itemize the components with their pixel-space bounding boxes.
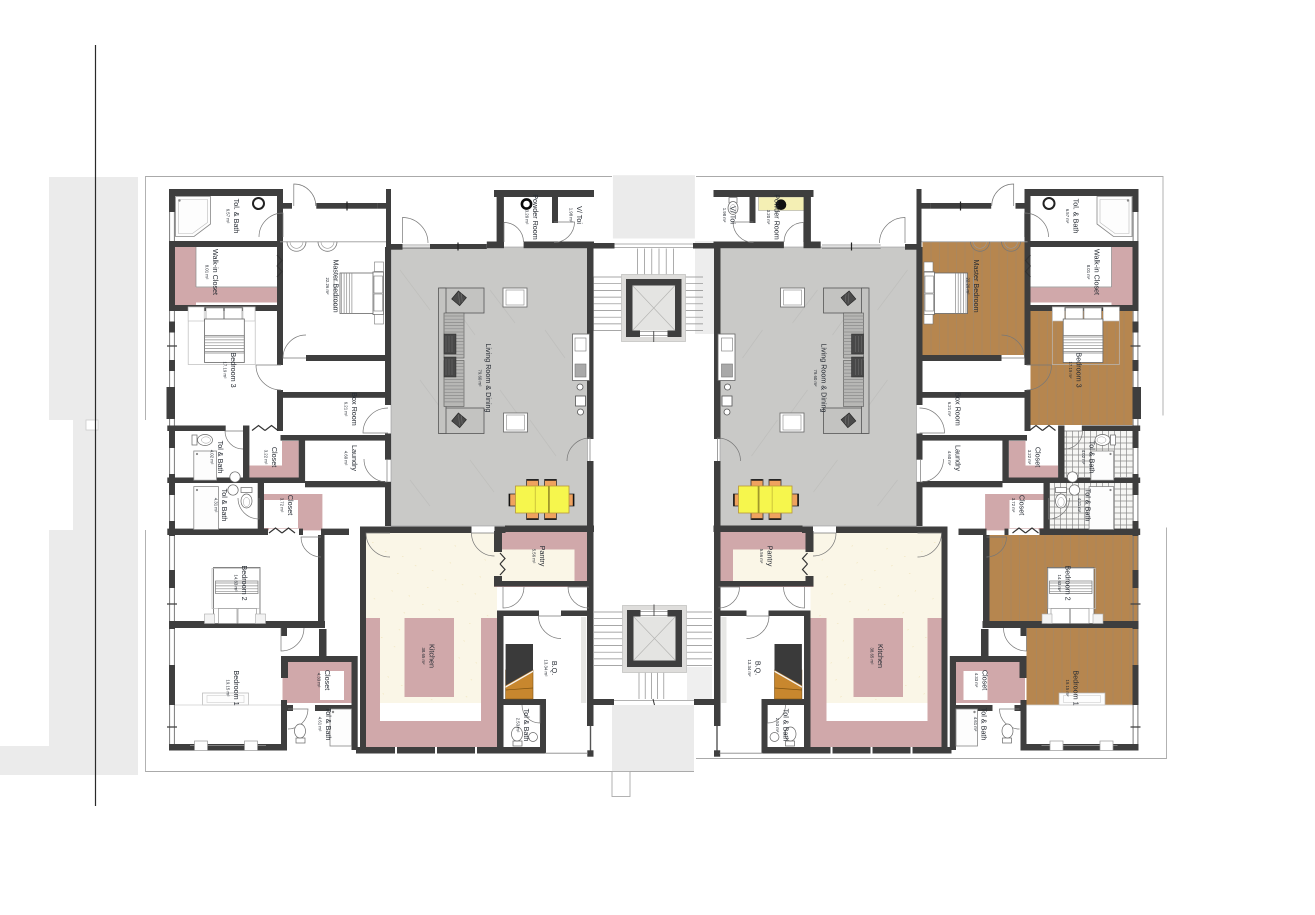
svg-text:V/ Toi: V/ Toi — [575, 206, 584, 224]
svg-text:Closet: Closet — [981, 670, 990, 690]
svg-text:4.33 m²: 4.33 m² — [974, 673, 979, 688]
svg-text:14.63 m²: 14.63 m² — [1057, 575, 1062, 593]
svg-text:1.98 m²: 1.98 m² — [722, 208, 727, 223]
svg-text:Closet: Closet — [1018, 495, 1027, 515]
svg-text:14.63 m²: 14.63 m² — [233, 575, 238, 593]
svg-text:Tol & Bath: Tol & Bath — [1084, 489, 1093, 522]
svg-text:3.22 m²: 3.22 m² — [1027, 450, 1032, 465]
svg-text:Walk-in Closet: Walk-in Closet — [211, 249, 220, 295]
svg-text:2.53 m²: 2.53 m² — [515, 718, 520, 733]
svg-text:Tol & Bath: Tol & Bath — [522, 709, 531, 742]
svg-text:3.22 m²: 3.22 m² — [263, 450, 268, 465]
svg-text:Box Room: Box Room — [350, 392, 359, 426]
svg-text:5.56 m²: 5.56 m² — [531, 549, 536, 564]
svg-text:Powder Room: Powder Room — [531, 194, 540, 240]
svg-text:B.Q.: B.Q. — [754, 661, 763, 675]
svg-text:Tol & Bath: Tol & Bath — [324, 708, 333, 741]
svg-text:Bedroom 3: Bedroom 3 — [229, 352, 238, 387]
svg-text:Bedroom 1: Bedroom 1 — [232, 670, 241, 705]
svg-text:4.31 m²: 4.31 m² — [213, 498, 218, 513]
svg-text:Laundry: Laundry — [954, 445, 963, 471]
svg-text:4.60 m²: 4.60 m² — [947, 451, 952, 466]
svg-text:3.20 m²: 3.20 m² — [766, 210, 771, 225]
svg-text:Bedroom 2: Bedroom 2 — [240, 565, 249, 600]
svg-text:Bedroom 3: Bedroom 3 — [1075, 352, 1084, 387]
svg-text:22.26 m²: 22.26 m² — [965, 278, 970, 296]
svg-text:Bedroom 1: Bedroom 1 — [1072, 670, 1081, 705]
svg-text:4.61 m²: 4.61 m² — [973, 717, 978, 732]
svg-text:Pantry: Pantry — [766, 546, 775, 567]
svg-text:Pantry: Pantry — [538, 546, 547, 567]
svg-text:8.01 m²: 8.01 m² — [204, 265, 209, 280]
svg-text:Tol. & Bath: Tol. & Bath — [1072, 199, 1081, 234]
svg-text:Living Room & Dining: Living Room & Dining — [820, 343, 829, 412]
svg-text:17.19 m²: 17.19 m² — [222, 362, 227, 380]
svg-text:38.65 m²: 38.65 m² — [869, 648, 874, 666]
svg-text:22.26 m²: 22.26 m² — [325, 278, 330, 296]
svg-text:Closet: Closet — [323, 670, 332, 690]
svg-text:19.15 m²: 19.15 m² — [225, 680, 230, 698]
svg-text:3.72 m²: 3.72 m² — [279, 498, 284, 513]
svg-text:79.60 m²: 79.60 m² — [477, 370, 482, 388]
svg-text:Closet: Closet — [286, 495, 295, 515]
svg-text:6.21 m²: 6.21 m² — [947, 402, 952, 417]
svg-text:4.02 m²: 4.02 m² — [1081, 450, 1086, 465]
svg-text:B.Q.: B.Q. — [550, 661, 559, 675]
svg-text:1.98 m²: 1.98 m² — [568, 208, 573, 223]
svg-text:Box Room: Box Room — [954, 392, 963, 426]
svg-text:Closet: Closet — [270, 447, 279, 467]
svg-text:19.15 m²: 19.15 m² — [1065, 680, 1070, 698]
svg-text:Tol & Bath: Tol & Bath — [980, 708, 989, 741]
svg-text:4.33 m²: 4.33 m² — [316, 673, 321, 688]
svg-text:79.60 m²: 79.60 m² — [813, 370, 818, 388]
svg-text:6.57 m²: 6.57 m² — [1065, 209, 1070, 224]
svg-text:13.34 m²: 13.34 m² — [543, 660, 548, 678]
svg-text:6.57 m²: 6.57 m² — [225, 209, 230, 224]
svg-text:6.21 m²: 6.21 m² — [343, 402, 348, 417]
svg-text:3.72 m²: 3.72 m² — [1011, 498, 1016, 513]
svg-text:Tol & Bath: Tol & Bath — [216, 441, 225, 474]
svg-text:4.60 m²: 4.60 m² — [343, 451, 348, 466]
svg-text:Tol & Bath: Tol & Bath — [782, 709, 791, 742]
svg-text:Powder Room: Powder Room — [773, 194, 782, 240]
svg-text:3.20 m²: 3.20 m² — [524, 210, 529, 225]
svg-text:Tol. & Bath: Tol. & Bath — [232, 199, 241, 234]
svg-text:2.53 m²: 2.53 m² — [775, 718, 780, 733]
svg-text:5.56 m²: 5.56 m² — [759, 549, 764, 564]
svg-text:Master Bedroom: Master Bedroom — [972, 259, 981, 312]
svg-text:Kitchen: Kitchen — [876, 644, 885, 668]
svg-text:Tol & Bath: Tol & Bath — [1088, 441, 1097, 474]
svg-text:4.61 m²: 4.61 m² — [317, 717, 322, 732]
svg-text:V/ Toi: V/ Toi — [729, 206, 738, 224]
svg-text:Living Room & Dining: Living Room & Dining — [484, 343, 493, 412]
svg-text:Laundry: Laundry — [350, 445, 359, 471]
svg-text:38.65 m²: 38.65 m² — [421, 648, 426, 666]
svg-text:4.02 m²: 4.02 m² — [209, 450, 214, 465]
svg-text:Master Bedroom: Master Bedroom — [332, 259, 341, 312]
svg-text:13.34 m²: 13.34 m² — [747, 660, 752, 678]
svg-text:17.19 m²: 17.19 m² — [1068, 362, 1073, 380]
svg-text:4.31 m²: 4.31 m² — [1077, 498, 1082, 513]
svg-text:Tol & Bath: Tol & Bath — [220, 489, 229, 522]
svg-text:Kitchen: Kitchen — [428, 644, 437, 668]
svg-text:Walk-in Closet: Walk-in Closet — [1093, 249, 1102, 295]
svg-text:8.01 m²: 8.01 m² — [1086, 265, 1091, 280]
svg-text:Bedroom 2: Bedroom 2 — [1064, 565, 1073, 600]
svg-text:Closet: Closet — [1034, 447, 1043, 467]
